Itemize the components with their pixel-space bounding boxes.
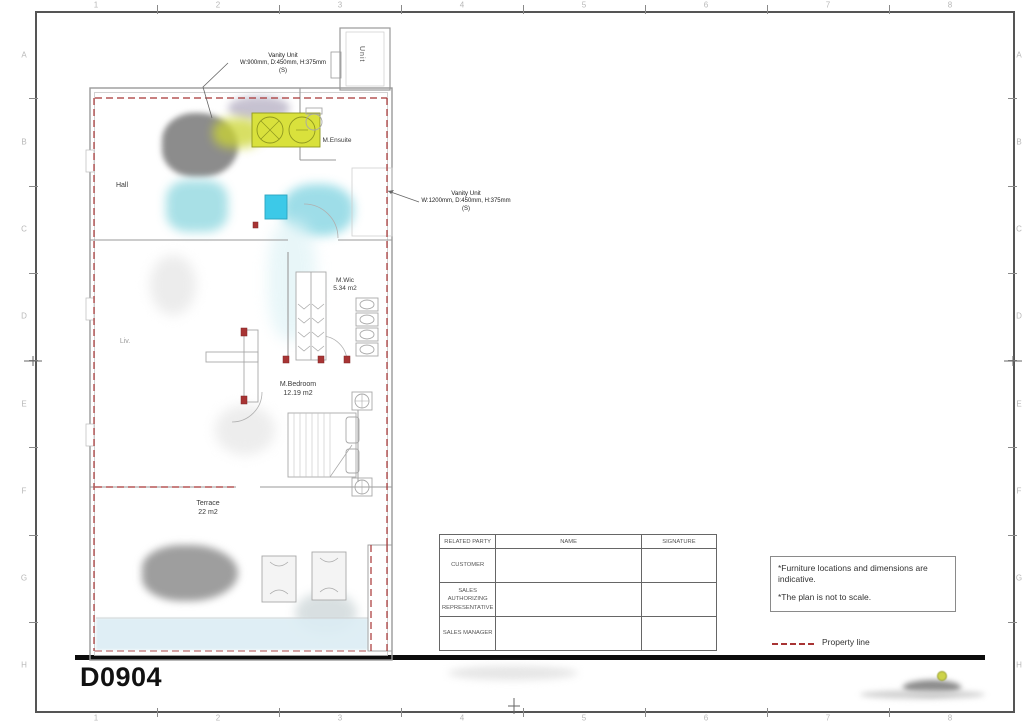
floor-plan-drawing <box>0 0 1024 724</box>
room-label-terrace: Terrace <box>196 500 219 507</box>
annotation-dims: W:900mm, D:450mm, H:375mm <box>240 60 326 68</box>
door-jambs <box>241 222 350 404</box>
annotation-qty: (S) <box>421 206 510 214</box>
annotation-qty: (S) <box>240 68 326 76</box>
annotation-title: Vanity Unit <box>240 52 326 60</box>
annotation-title: Vanity Unit <box>421 190 510 198</box>
room-label-hall: Hall <box>116 182 128 191</box>
room-label-wic: M.Wic <box>336 277 354 284</box>
shaft-label-unit: Unit <box>358 46 365 62</box>
annotation-vanity-top: Vanity Unit W:900mm, D:450mm, H:375mm (S… <box>240 52 326 76</box>
room-area-wic: 5.34 m2 <box>333 285 357 292</box>
annotation-dims: W:1200mm, D:450mm, H:375mm <box>421 198 510 206</box>
room-label-living: Liv. <box>120 338 130 347</box>
room-label-bedroom: M.Bedroom <box>280 381 316 388</box>
annotation-vanity-right: Vanity Unit W:1200mm, D:450mm, H:375mm (… <box>421 190 510 214</box>
room-area-bedroom: 12.19 m2 <box>283 390 312 397</box>
room-label-ensuite: M.Ensuite <box>323 137 352 145</box>
room-area-terrace: 22 m2 <box>198 509 217 516</box>
